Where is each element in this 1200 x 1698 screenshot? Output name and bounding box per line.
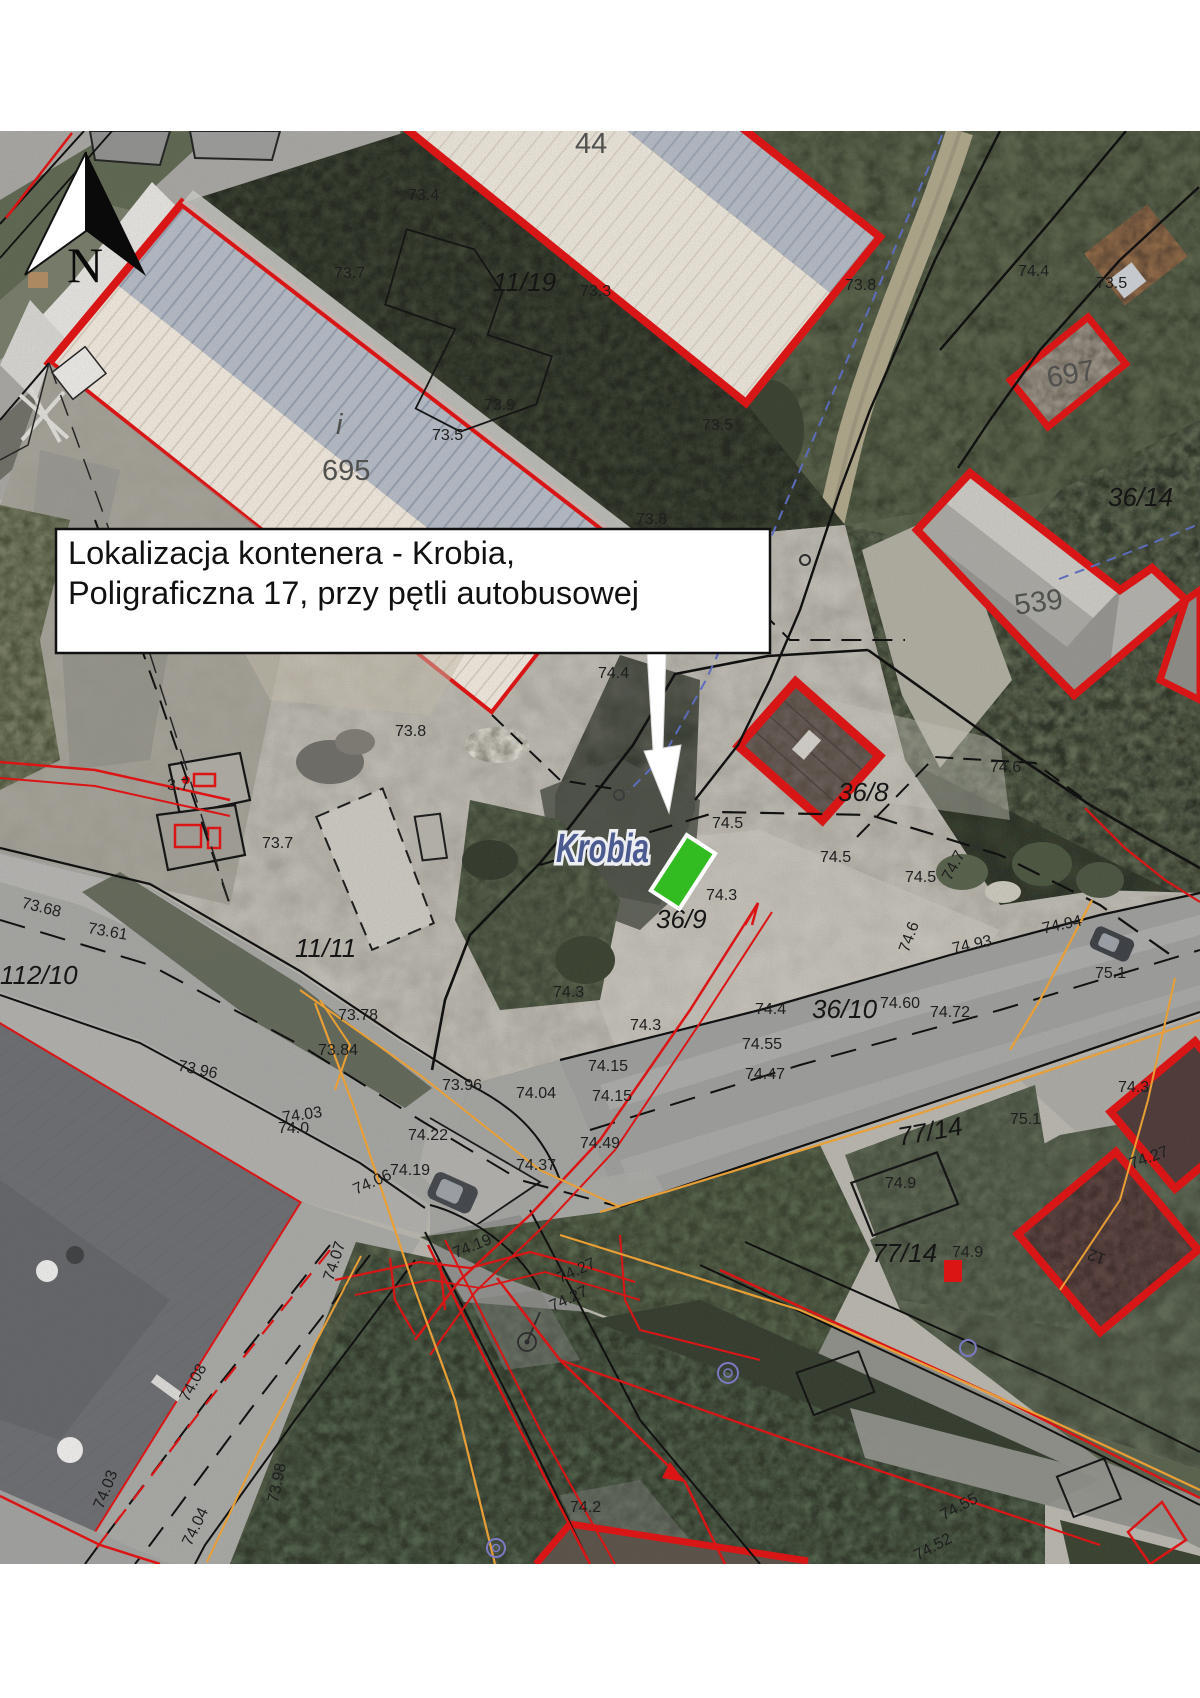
svg-text:Lokalizacja kontenera - Krobia: Lokalizacja kontenera - Krobia, — [68, 535, 515, 571]
svg-text:Poligraficzna 17, przy pętli a: Poligraficzna 17, przy pętli autobusowej — [68, 575, 639, 611]
svg-text:N: N — [67, 237, 103, 293]
svg-text:Krobia: Krobia — [556, 825, 649, 871]
